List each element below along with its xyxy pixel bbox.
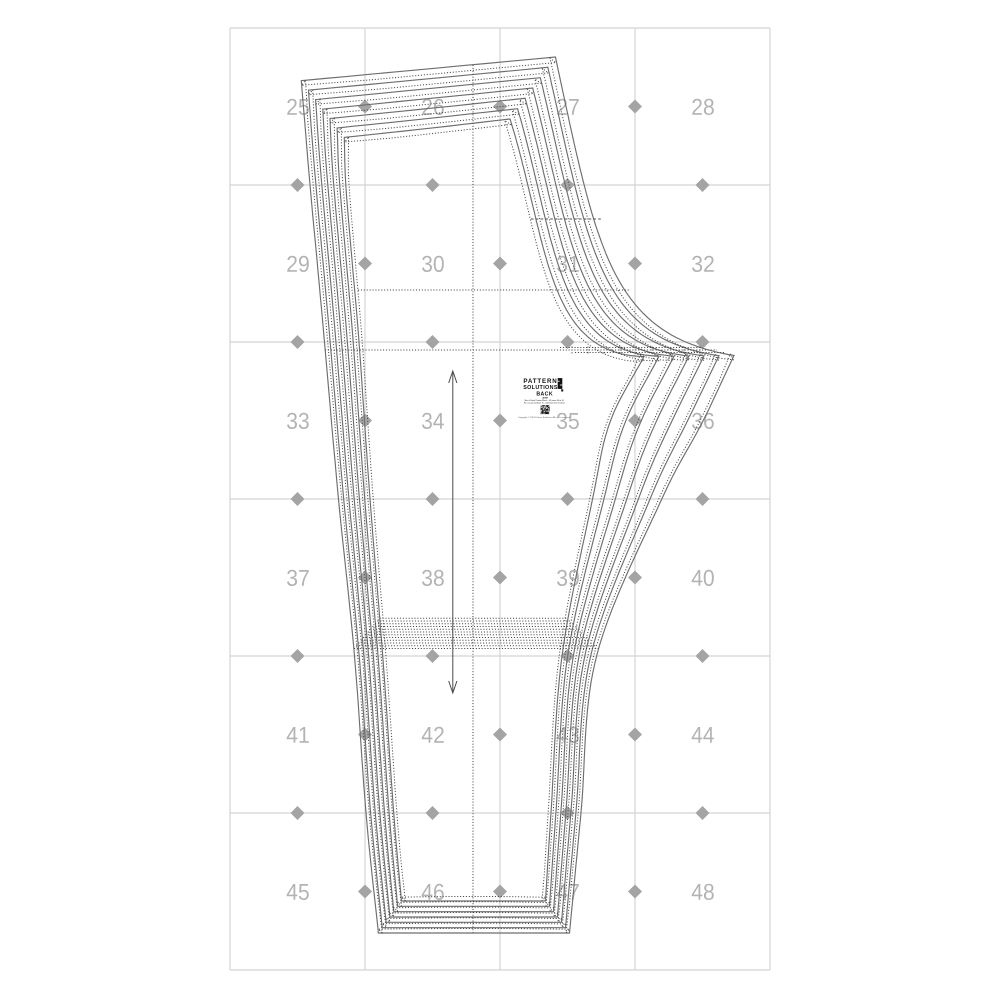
svg-text:PATTERN: PATTERN <box>523 378 557 385</box>
svg-text:SOLUTIONS: SOLUTIONS <box>523 385 558 391</box>
svg-text:For casual and basic fit – alt: For casual and basic fit – alteration li… <box>524 401 565 404</box>
svg-text:Copyright © 2023 Pattern Solut: Copyright © 2023 Pattern Solutions. All … <box>518 416 571 419</box>
